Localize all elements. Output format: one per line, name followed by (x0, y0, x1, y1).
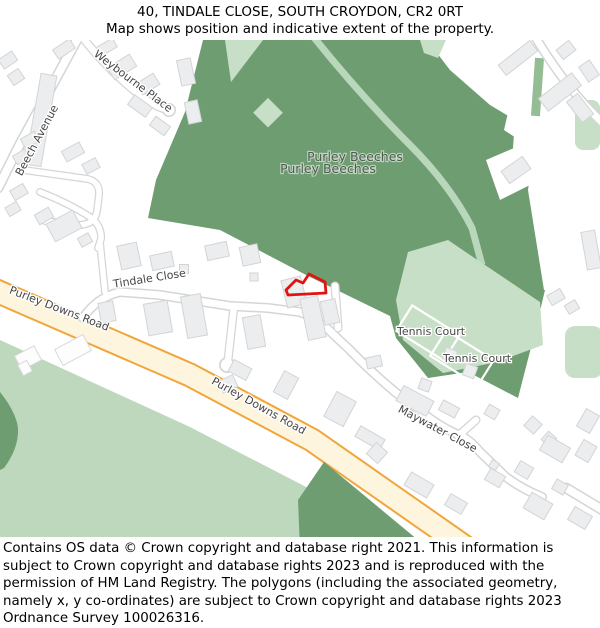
map-header: 40, TINDALE CLOSE, SOUTH CROYDON, CR2 0R… (0, 0, 600, 40)
tennis-court-label-1: Tennis Court (396, 325, 466, 338)
map-svg: Beech Avenue Weybourne Place Tindale Clo… (0, 40, 600, 537)
map-footer: Contains OS data © Crown copyright and d… (0, 537, 600, 625)
copyright-text: Contains OS data © Crown copyright and d… (0, 537, 600, 628)
map-canvas: Beech Avenue Weybourne Place Tindale Clo… (0, 40, 600, 537)
woodland-label-purley-beeches-2: Purley Beeches (280, 161, 376, 176)
page-title: 40, TINDALE CLOSE, SOUTH CROYDON, CR2 0R… (0, 0, 600, 21)
page-subtitle: Map shows position and indicative extent… (0, 21, 600, 38)
tennis-court-label-2: Tennis Court (442, 352, 512, 365)
